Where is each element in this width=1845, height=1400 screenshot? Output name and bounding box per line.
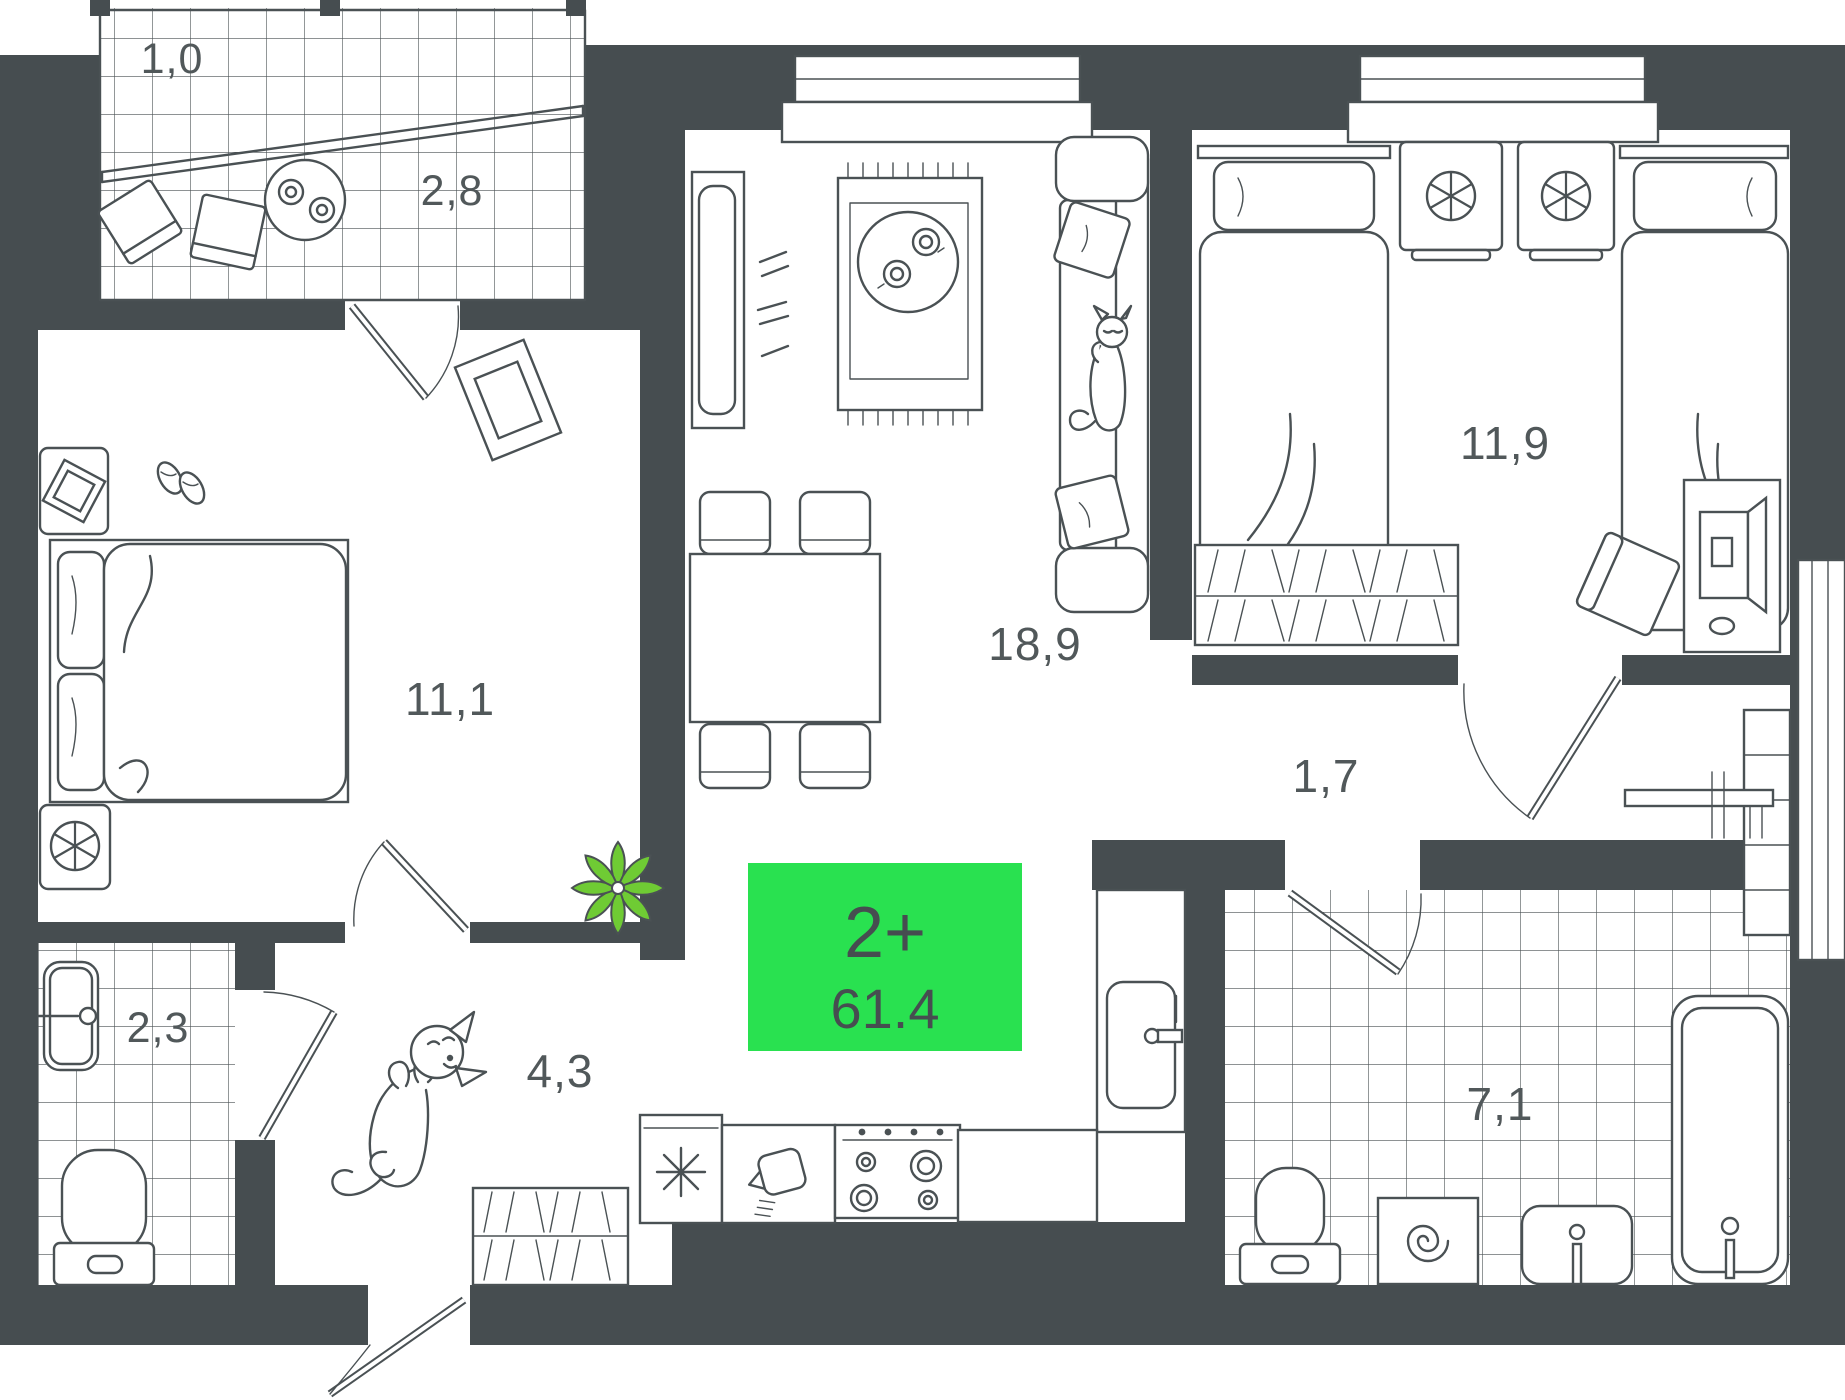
room-label-bathroom: 7,1 bbox=[1467, 1078, 1534, 1130]
radiator bbox=[1744, 710, 1790, 935]
balcony-post bbox=[90, 0, 110, 16]
double-bed bbox=[50, 540, 348, 802]
area-badge: 2+ 61.4 bbox=[748, 863, 1022, 1051]
room-label-living-room: 18,9 bbox=[988, 618, 1082, 670]
wardrobe bbox=[1195, 545, 1458, 645]
nightstand-fan bbox=[1518, 142, 1614, 260]
plant-icon bbox=[572, 842, 664, 934]
nightstand-fan bbox=[40, 805, 110, 889]
room-label-balcony-small: 1,0 bbox=[141, 35, 204, 83]
kitchen-counter bbox=[958, 1130, 1097, 1222]
nightstand-fan bbox=[1400, 142, 1502, 260]
fridge bbox=[640, 1115, 722, 1223]
floor-plan-drawing: 1,0 2,8 11,1 18,9 11,9 1,7 2,3 4,3 7,1 2… bbox=[0, 0, 1845, 1400]
stove bbox=[835, 1125, 960, 1218]
badge-area-value: 61.4 bbox=[831, 977, 940, 1040]
balcony-table bbox=[265, 160, 345, 240]
desk bbox=[1684, 480, 1780, 652]
floor-plan: 1,0 2,8 11,1 18,9 11,9 1,7 2,3 4,3 7,1 2… bbox=[0, 0, 1845, 1400]
toilet bbox=[54, 1150, 154, 1285]
shoe-cabinet bbox=[473, 1188, 628, 1285]
washing-machine bbox=[1378, 1198, 1478, 1284]
balcony-chair bbox=[190, 194, 266, 270]
sink bbox=[1522, 1206, 1632, 1284]
room-label-corridor: 4,3 bbox=[527, 1045, 594, 1097]
room-label-hall: 1,7 bbox=[1293, 750, 1360, 802]
badge-rooms-label: 2+ bbox=[844, 893, 926, 973]
mouse-icon bbox=[1710, 618, 1734, 634]
room-label-bathroom-small: 2,3 bbox=[127, 1004, 190, 1052]
bathtub bbox=[1672, 996, 1788, 1284]
room-label-bedroom-right: 11,9 bbox=[1460, 417, 1550, 469]
kitchen-cabinet bbox=[722, 1125, 835, 1223]
monitor-icon bbox=[1748, 498, 1766, 612]
sink bbox=[38, 962, 98, 1070]
room-label-bedroom-left: 11,1 bbox=[405, 673, 495, 725]
side-window bbox=[1798, 560, 1845, 960]
kitchen-sink-unit bbox=[1097, 890, 1185, 1132]
nightstand bbox=[40, 448, 108, 534]
room-label-balcony: 2,8 bbox=[421, 167, 484, 215]
balcony-post bbox=[320, 0, 340, 16]
balcony-post bbox=[566, 0, 586, 16]
snowflake-icon bbox=[657, 1148, 705, 1196]
coffee-table bbox=[858, 212, 958, 312]
bedroom-window bbox=[1348, 56, 1658, 142]
living-room-window bbox=[782, 56, 1092, 142]
